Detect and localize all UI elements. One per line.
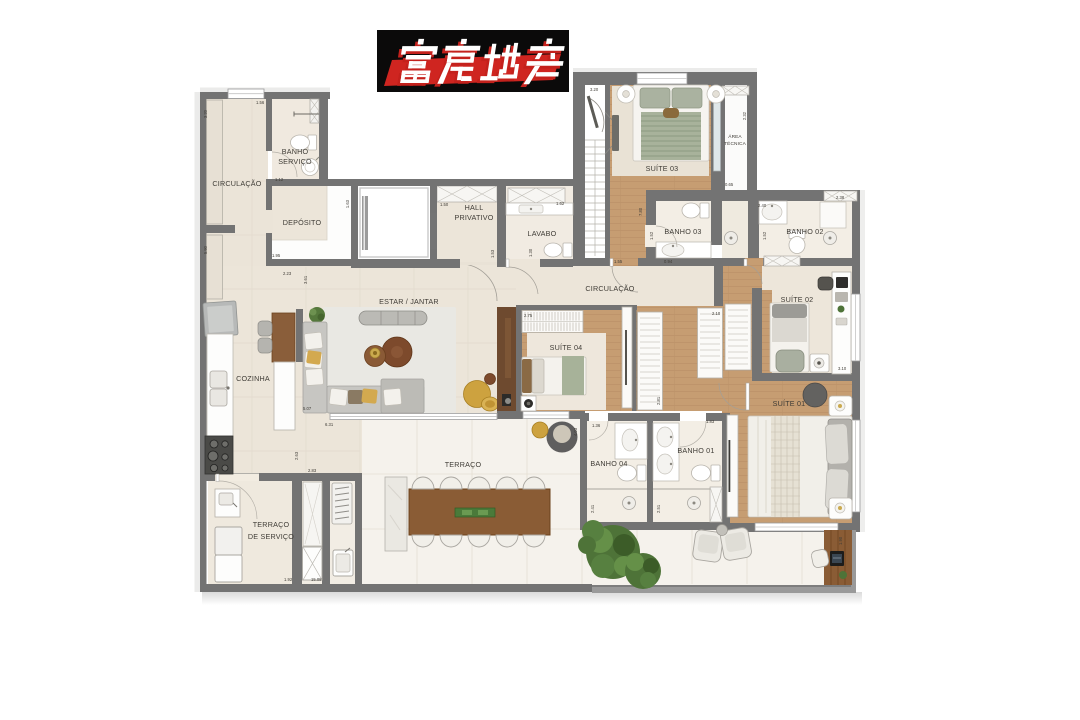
svg-text:DE SERVIÇO: DE SERVIÇO [248,532,294,541]
svg-text:0.65: 0.65 [725,182,734,187]
svg-text:1.92: 1.92 [284,577,293,582]
svg-text:TERRAÇO: TERRAÇO [253,520,290,529]
svg-text:1.56: 1.56 [256,100,265,105]
svg-text:2.51: 2.51 [656,504,661,513]
svg-text:ESTAR / JANTAR: ESTAR / JANTAR [379,297,439,306]
svg-text:BANHO 01: BANHO 01 [677,446,714,455]
svg-text:1.63: 1.63 [345,199,350,208]
svg-text:1.52: 1.52 [762,231,767,240]
svg-text:2.41: 2.41 [590,504,595,513]
svg-text:0.94: 0.94 [664,259,673,264]
svg-text:1.50: 1.50 [440,202,449,207]
svg-text:1.55: 1.55 [614,259,623,264]
svg-text:TÉCNICA: TÉCNICA [724,140,746,147]
svg-text:SUÍTE 01: SUÍTE 01 [773,399,806,408]
svg-text:2.83: 2.83 [308,468,317,473]
svg-text:2.38: 2.38 [836,195,845,200]
svg-text:3.20: 3.20 [590,87,599,92]
svg-text:SUÍTE 04: SUÍTE 04 [550,343,583,352]
svg-text:2.75: 2.75 [524,313,533,318]
svg-text:2.23: 2.23 [283,271,292,276]
svg-text:LAVABO: LAVABO [528,229,557,238]
svg-text:TERRAÇO: TERRAÇO [445,460,482,469]
svg-text:1.36: 1.36 [592,423,601,428]
svg-text:ÁREA: ÁREA [728,133,742,140]
svg-text:PRIVATIVO: PRIVATIVO [454,213,493,222]
svg-text:3.20: 3.20 [203,109,208,118]
svg-text:1.90: 1.90 [838,536,843,545]
svg-text:3.10: 3.10 [838,366,847,371]
svg-text:2.81: 2.81 [656,396,661,405]
svg-text:3.61: 3.61 [303,275,308,284]
svg-text:BANHO 03: BANHO 03 [664,227,701,236]
svg-text:6.31: 6.31 [325,422,334,427]
svg-text:1.52: 1.52 [649,231,654,240]
svg-text:1.30: 1.30 [528,248,533,257]
svg-text:CIRCULAÇÃO: CIRCULAÇÃO [212,179,261,188]
svg-text:SERVIÇO: SERVIÇO [278,157,312,166]
svg-text:BANHO 02: BANHO 02 [786,227,823,236]
svg-text:15.08: 15.08 [311,577,322,582]
svg-text:1.12: 1.12 [275,177,284,182]
svg-text:BANHO 04: BANHO 04 [590,459,627,468]
svg-text:COZINHA: COZINHA [236,374,270,383]
svg-text:1.95: 1.95 [272,253,281,258]
svg-text:4.03: 4.03 [573,427,578,436]
svg-text:2.40: 2.40 [758,203,767,208]
svg-text:2.32: 2.32 [742,111,747,120]
svg-text:5.07: 5.07 [303,406,312,411]
svg-text:HALL: HALL [465,203,484,212]
svg-text:2.63: 2.63 [294,451,299,460]
svg-text:DEPÓSITO: DEPÓSITO [283,218,322,227]
svg-text:1.62: 1.62 [556,201,565,206]
svg-text:BANHO: BANHO [282,147,309,156]
svg-text:1.83: 1.83 [706,419,715,424]
svg-text:CIRCULAÇÃO: CIRCULAÇÃO [585,284,634,293]
svg-text:SUÍTE 02: SUÍTE 02 [781,295,814,304]
svg-text:SUÍTE 03: SUÍTE 03 [646,164,679,173]
svg-text:1.53: 1.53 [490,249,495,258]
svg-text:5.90: 5.90 [203,245,208,254]
svg-text:2.10: 2.10 [712,311,721,316]
svg-text:7.80: 7.80 [638,207,643,216]
